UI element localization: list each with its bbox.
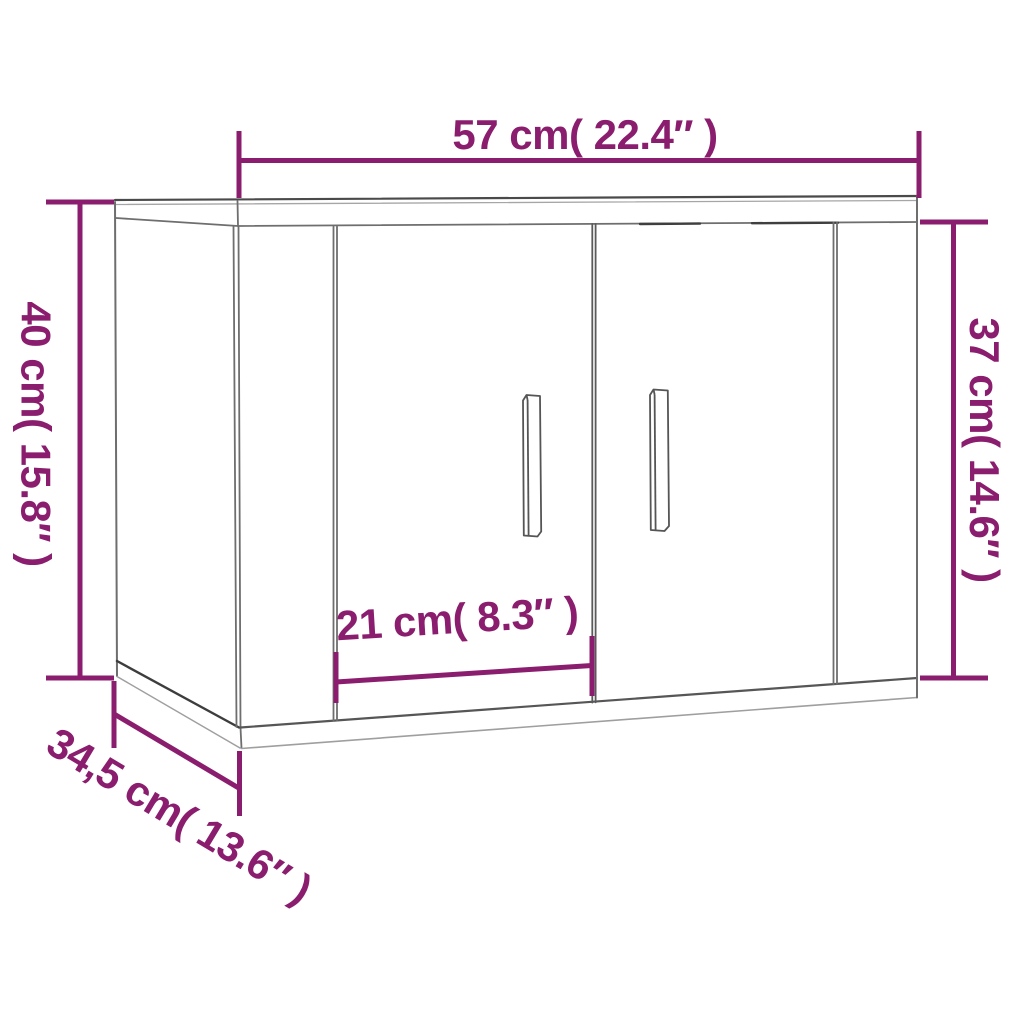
top-edge-dark-line xyxy=(115,196,917,200)
door-width-dimension-label: 21 cm( 8.3″ ) xyxy=(335,588,580,650)
diagram-canvas: 57 cm( 22.4″ ) 40 cm( 15.8″ ) 37 cm( 14.… xyxy=(0,0,1024,1024)
side-bottom-edge-dark xyxy=(117,661,239,728)
depth-dimension-label: 34,5 cm( 13.6″ ) xyxy=(39,718,320,912)
bottom-front-left-corner-edge xyxy=(241,728,242,749)
front-left-edge-inner xyxy=(234,227,237,728)
right-door-handle xyxy=(650,390,669,532)
front-left-edge-outer xyxy=(239,227,241,728)
right-door-handle-inner-edge xyxy=(655,395,656,530)
dimension-lines xyxy=(46,131,988,816)
door-width-dimension-line xyxy=(336,666,592,683)
front-height-dimension-label: 37 cm( 14.6″ ) xyxy=(961,317,1008,582)
left-back-edge xyxy=(115,202,117,676)
top-edge-light-line xyxy=(115,201,917,205)
side-bottom-edge-light xyxy=(117,677,240,749)
width-dimension-label: 57 cm( 22.4″ ) xyxy=(452,111,717,158)
total-height-dimension-label: 40 cm( 15.8″ ) xyxy=(13,301,60,566)
left-door-handle xyxy=(523,395,541,537)
product-dimension-diagram: 57 cm( 22.4″ ) 40 cm( 15.8″ ) 37 cm( 14.… xyxy=(0,0,1024,1024)
top-band-hinge-mark-right xyxy=(752,223,838,224)
left-door-handle-top-edge xyxy=(527,395,528,400)
bottom-band-lower-edge xyxy=(242,698,918,749)
top-band-left-bottom-edge xyxy=(116,218,238,226)
doors-bottom-edge xyxy=(241,678,918,728)
top-band-corner-divider xyxy=(238,201,239,226)
right-door-handle-top-edge xyxy=(654,390,655,395)
left-door-handle-inner-edge xyxy=(528,400,529,535)
cabinet-outline xyxy=(115,196,917,749)
